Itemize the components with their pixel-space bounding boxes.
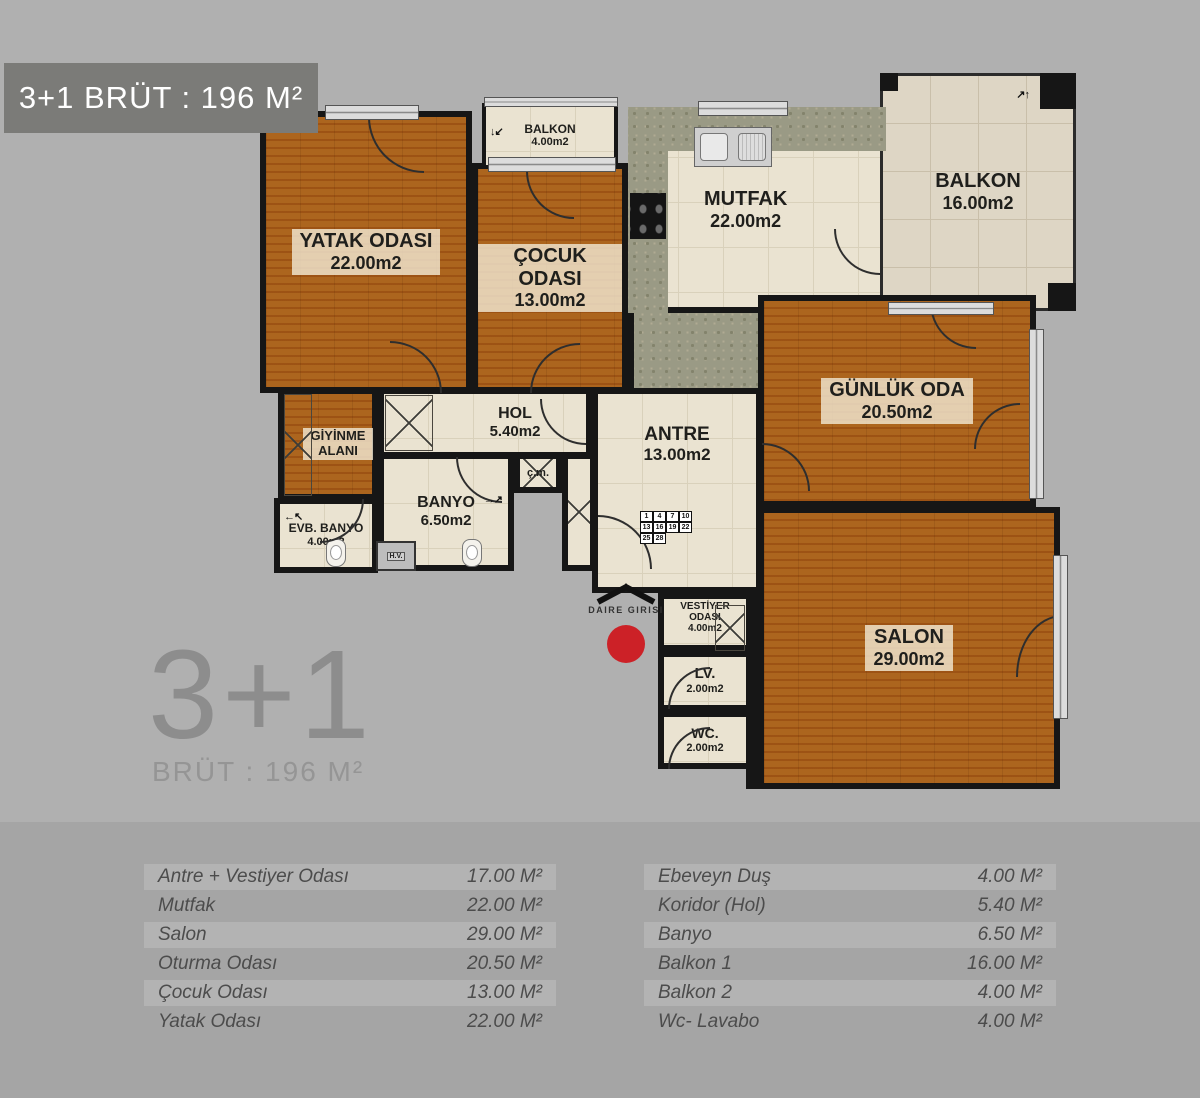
table-row: Salon 29.00 M² [144,922,556,948]
shaft-box [562,453,596,571]
kitchen-corridor [628,307,764,395]
area-table-right: Ebeveyn Duş 4.00 M² Koridor (Hol) 5.40 M… [644,864,1056,1038]
room-yatak-odasi: YATAK ODASI 22.00m2 [260,111,472,393]
window [888,302,994,315]
kitchen-sink-icon [694,127,772,167]
room-giyinme-alani: GİYİNME ALANI [278,388,378,500]
table-row: Antre + Vestiyer Odası 17.00 M² [144,864,556,890]
unit-number: 10 [679,511,692,522]
drain-arrows-icon: ↓↙ [490,125,503,138]
room-label: BANYO 6.50m2 [417,494,475,529]
table-row: Balkon 2 4.00 M² [644,980,1056,1006]
room-label: HOL 5.40m2 [490,405,541,440]
unit-number-panel: 1 4 7 10 13 16 19 22 25 28 [640,511,692,544]
room-vestiyer-odasi: VESTİYER ODASI 4.00m2 [658,593,752,651]
room-label: GİYİNME ALANI [303,428,374,459]
window [1029,329,1044,499]
room-label: BALKON 4.00m2 [524,123,575,149]
plan-type-badge: 3+1 BRÜT : 196 M² [4,63,318,133]
wardrobe-icon [284,394,312,496]
room-label: SALON 29.00m2 [865,625,952,670]
table-row: Ebeveyn Duş 4.00 M² [644,864,1056,890]
area-table-section: Antre + Vestiyer Odası 17.00 M² Mutfak 2… [0,822,1200,1098]
unit-number: 28 [653,533,666,544]
drain-arrows-icon: →↗ [484,493,502,506]
balcony-railing [484,97,618,107]
page: { "page": {"background": "#b0b0b0", "bot… [0,0,1200,1098]
area-table-left: Antre + Vestiyer Odası 17.00 M² Mutfak 2… [144,864,556,1038]
table-row: Oturma Odası 20.50 M² [144,951,556,977]
table-row: Mutfak 22.00 M² [144,893,556,919]
unit-number: 19 [666,522,679,533]
drain-arrows-icon: ↗↑ [1016,88,1029,101]
room-label: YATAK ODASI 22.00m2 [292,229,441,274]
room-label: ÇOCUK ODASI 13.00m2 [478,244,622,311]
toilet-icon [462,539,482,567]
closet-cm: ç.m. [514,453,562,493]
table-row: Yatak Odası 22.00 M² [144,1009,556,1035]
table-row: Balkon 1 16.00 M² [644,951,1056,977]
window [1053,555,1068,719]
floor-plan: YATAK ODASI 22.00m2 ÇOCUK ODASI 13.00m2 … [230,55,1110,805]
unit-number: 25 [640,533,653,544]
unit-number: 4 [653,511,666,522]
table-row: Banyo 6.50 M² [644,922,1056,948]
unit-number: 1 [640,511,653,522]
entrance-label: DAIRE GIRISI [560,605,692,615]
unit-number: 7 [666,511,679,522]
unit-number: 13 [640,522,653,533]
wall [746,593,762,789]
window [325,105,419,120]
shaft-label: H.V. [387,552,406,561]
room-salon: SALON 29.00m2 [758,507,1060,789]
toilet-icon [326,539,346,567]
shaft-hv: H.V. [376,541,416,571]
table-row: Çocuk Odası 13.00 M² [144,980,556,1006]
unit-number: 22 [679,522,692,533]
closet-label: ç.m. [527,467,549,479]
table-row: Koridor (Hol) 5.40 M² [644,893,1056,919]
wardrobe-icon [385,395,433,451]
window [698,101,788,116]
wall-corner [880,73,898,91]
wardrobe-icon [715,605,745,651]
room-balkon-buyuk: BALKON 16.00m2 ↗↑ [880,73,1076,311]
unit-number-blank [679,533,692,544]
unit-number: 16 [653,522,666,533]
room-label: BALKON 16.00m2 [935,170,1021,213]
drain-arrows-icon: ←↖ [284,510,302,523]
room-label: GÜNLÜK ODA 20.50m2 [821,378,973,423]
room-label: MUTFAK 22.00m2 [704,188,787,231]
wall-corner [1040,73,1076,109]
entrance-dot [607,625,645,663]
unit-number-blank [666,533,679,544]
room-label: ANTRE 13.00m2 [643,424,710,465]
wall-corner [1048,283,1076,311]
table-row: Wc- Lavabo 4.00 M² [644,1009,1056,1035]
stove-icon [630,193,666,239]
plan-type-badge-label: 3+1 BRÜT : 196 M² [19,80,303,116]
window [488,157,616,172]
